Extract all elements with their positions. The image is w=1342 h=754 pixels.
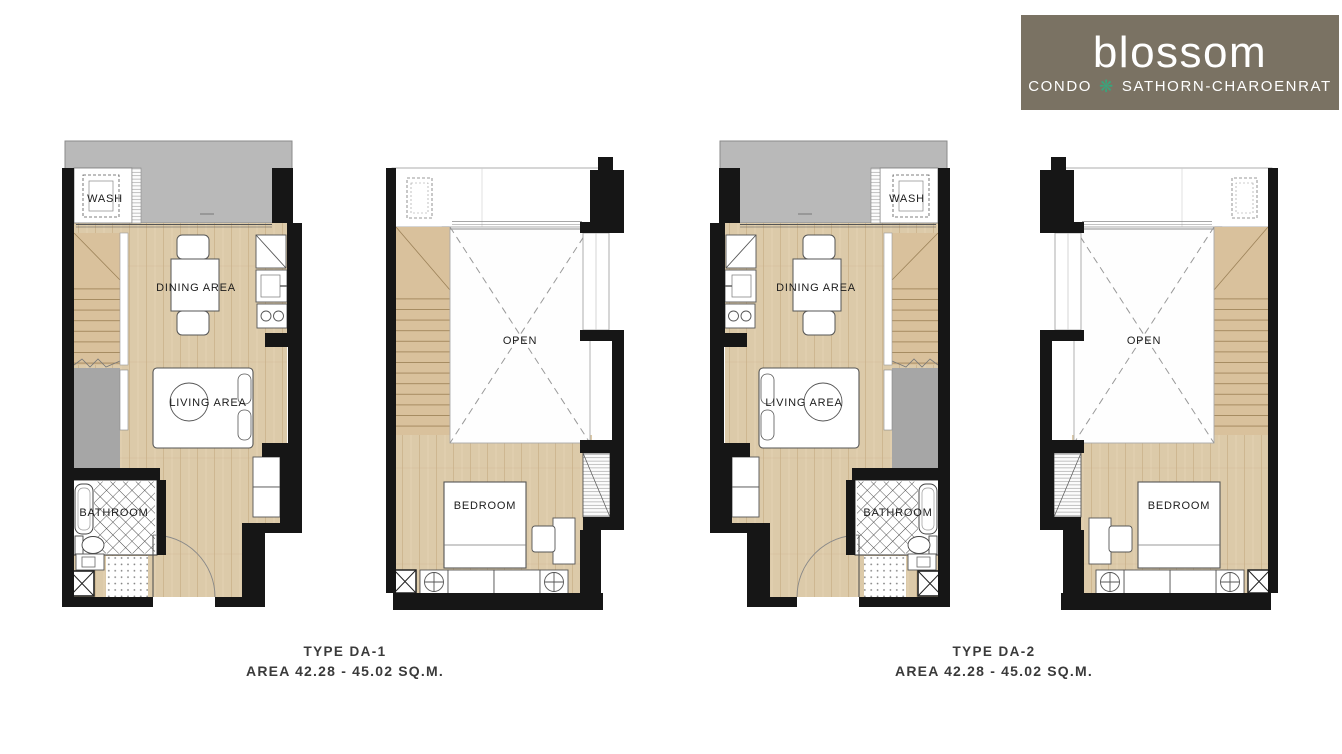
floor-plan-da1-upper-floor: OPEN BEDROOM <box>386 157 624 610</box>
unit-caption-da1: TYPE DA-1 AREA 42.28 - 45.02 SQ.M. <box>62 642 628 681</box>
floorplan-sheet: WASH DINING AREA LIVING AREA BATHROOM OP… <box>0 0 1342 754</box>
bedroom-label: BEDROOM <box>454 500 516 512</box>
dining-area-label: DINING AREA <box>156 282 236 294</box>
bathroom-label: BATHROOM <box>79 507 148 519</box>
dining-area-label: DINING AREA <box>776 282 856 294</box>
brand-name: blossom <box>1093 31 1267 75</box>
floor-plans-graphic: WASH DINING AREA LIVING AREA BATHROOM OP… <box>0 0 1342 754</box>
living-area-label: LIVING AREA <box>765 397 842 409</box>
unit-caption-da2: TYPE DA-2 AREA 42.28 - 45.02 SQ.M. <box>710 642 1278 681</box>
floor-plan-da2-upper-floor: OPEN BEDROOM <box>1040 157 1278 610</box>
flower-icon: ❋ <box>1099 78 1115 95</box>
floor-plan-da2-lower-floor: WASH DINING AREA LIVING AREA BATHROOM <box>710 141 950 607</box>
unit-area-label: AREA 42.28 - 45.02 SQ.M. <box>710 661 1278 681</box>
living-area-label: LIVING AREA <box>169 397 246 409</box>
wash-label: WASH <box>87 193 123 205</box>
unit-area-label: AREA 42.28 - 45.02 SQ.M. <box>62 661 628 681</box>
bathroom-label: BATHROOM <box>863 507 932 519</box>
bedroom-label: BEDROOM <box>1148 500 1210 512</box>
brand-subtitle-suffix: SATHORN-CHAROENRAT <box>1122 78 1332 95</box>
logo-card: blossom CONDO ❋ SATHORN-CHAROENRAT <box>1021 15 1339 110</box>
brand-subtitle: CONDO ❋ SATHORN-CHAROENRAT <box>1028 78 1332 95</box>
unit-type-label: TYPE DA-1 <box>62 642 628 661</box>
floor-plan-da1-lower-floor: WASH DINING AREA LIVING AREA BATHROOM <box>62 141 302 607</box>
unit-type-label: TYPE DA-2 <box>710 642 1278 661</box>
open-label: OPEN <box>503 335 537 347</box>
brand-subtitle-prefix: CONDO <box>1028 78 1092 95</box>
wash-label: WASH <box>889 193 925 205</box>
open-label: OPEN <box>1127 335 1161 347</box>
